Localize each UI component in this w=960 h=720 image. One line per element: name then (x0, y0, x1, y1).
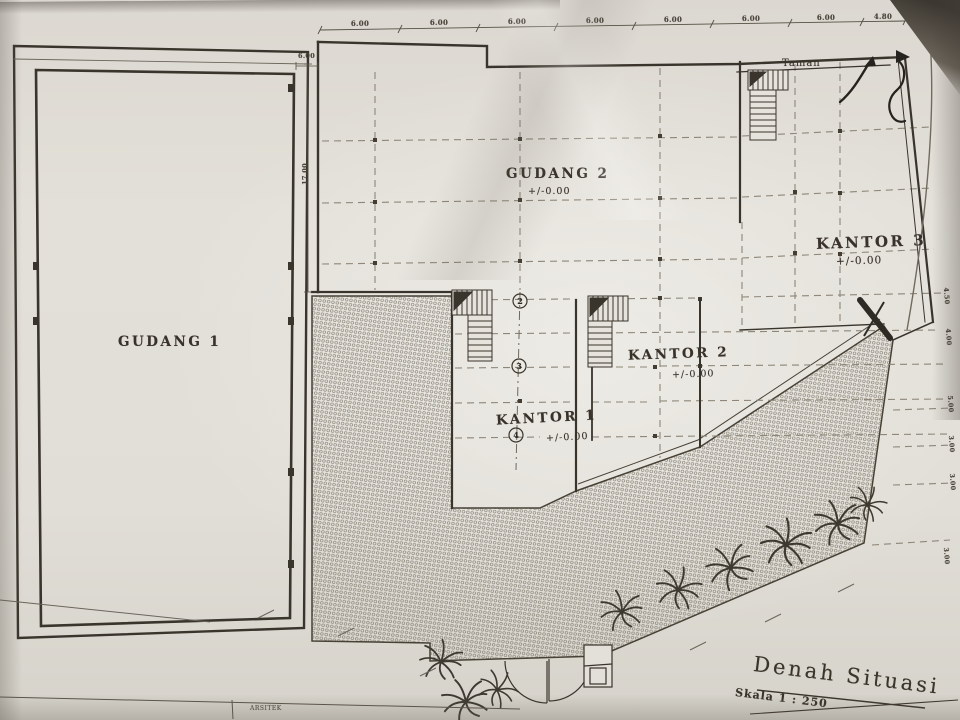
dimension-label: 6.00 (664, 15, 682, 24)
room-label-kantor3: KANTOR 3 (816, 231, 927, 253)
dimension-label: 4.00 (944, 328, 953, 346)
dimension-label: 6.00 (586, 16, 604, 25)
room-level-kantor2: +/-0.00 (672, 368, 715, 380)
stair-block-taman (748, 70, 788, 140)
grid-bubble-label: 4 (509, 430, 523, 440)
dimension-label: 4.50 (942, 287, 951, 305)
area-label-taman: Taman (782, 58, 821, 69)
dimension-label: 17.00 (301, 163, 309, 185)
grid-bubble-label: 2 (513, 296, 527, 306)
dimension-label: 3.00 (947, 435, 956, 453)
dimension-label: 6.00 (508, 17, 526, 26)
footer-strip-label: ARSITEK (250, 705, 282, 712)
dimension-label: 6.00 (430, 18, 448, 27)
grid-centerline (516, 292, 520, 470)
dimension-label: 3.00 (942, 547, 951, 565)
room-level-gudang2: +/-0.00 (528, 186, 571, 197)
dimension-label: 3.00 (948, 473, 957, 491)
site-plan-drawing (0, 0, 960, 720)
dimension-label: 6.00 (298, 52, 315, 60)
dimension-label: 6.00 (817, 13, 835, 22)
dimension-label: 6.00 (742, 14, 760, 23)
room-label-gudang2: GUDANG 2 (506, 166, 609, 182)
room-level-kantor3: +/-0.00 (836, 254, 883, 268)
stair-block-1 (452, 290, 492, 361)
dimension-label: 6.00 (351, 19, 369, 28)
grid-bubble-label: 3 (512, 361, 526, 371)
room-label-gudang1: GUDANG 1 (118, 334, 221, 350)
dimension-label: 4.80 (874, 12, 892, 21)
stair-block-2 (588, 296, 628, 367)
gudang1-column-ticks (33, 84, 294, 568)
dimension-label: 5.00 (946, 395, 955, 413)
site-plan-photo: GUDANG 1 GUDANG 2 +/-0.00 KANTOR 1 +/-0.… (0, 0, 960, 720)
room-level-kantor1: +/-0.00 (546, 431, 589, 444)
